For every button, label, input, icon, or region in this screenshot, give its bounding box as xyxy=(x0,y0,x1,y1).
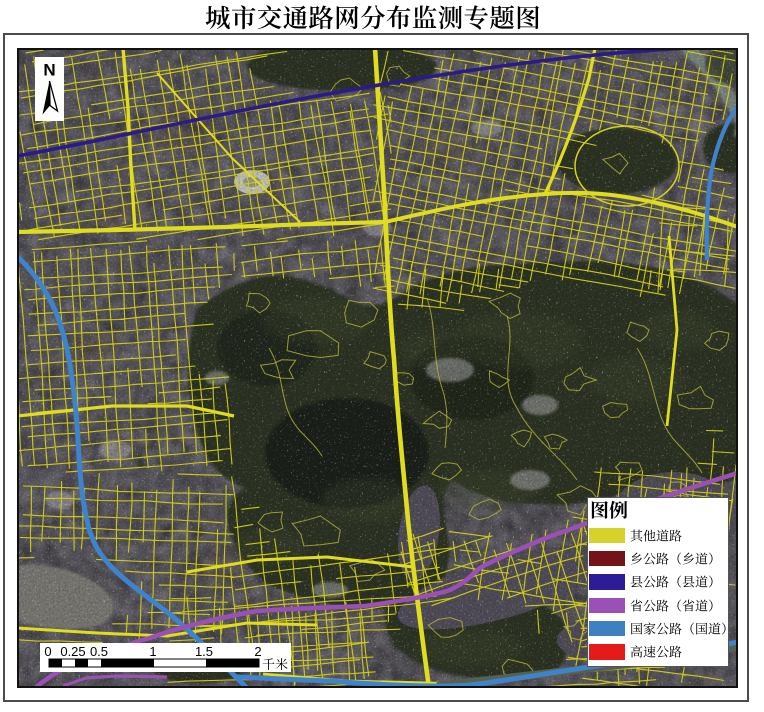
svg-text:0.25: 0.25 xyxy=(60,644,85,659)
svg-text:1: 1 xyxy=(149,644,156,659)
svg-text:1.5: 1.5 xyxy=(195,644,213,659)
svg-text:0: 0 xyxy=(44,644,51,659)
svg-text:2: 2 xyxy=(254,644,261,659)
svg-text:0.5: 0.5 xyxy=(90,644,108,659)
svg-text:N: N xyxy=(43,61,55,80)
